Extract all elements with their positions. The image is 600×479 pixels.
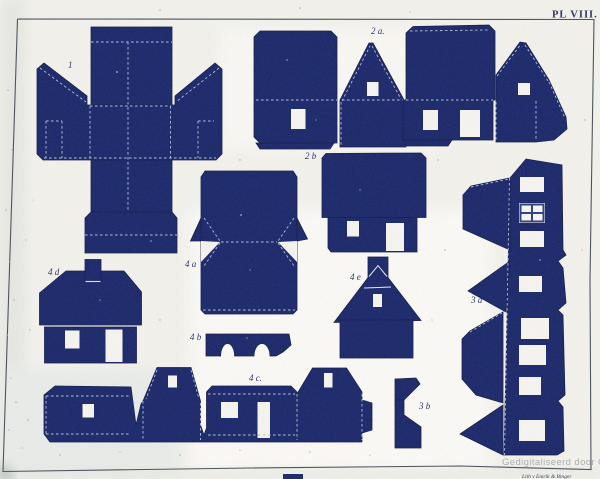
- svg-text:Gedigitaliseerd door Gc: Gedigitaliseerd door Gc: [502, 457, 600, 468]
- svg-text:Lith v Emrik & Binger: Lith v Emrik & Binger: [521, 474, 572, 479]
